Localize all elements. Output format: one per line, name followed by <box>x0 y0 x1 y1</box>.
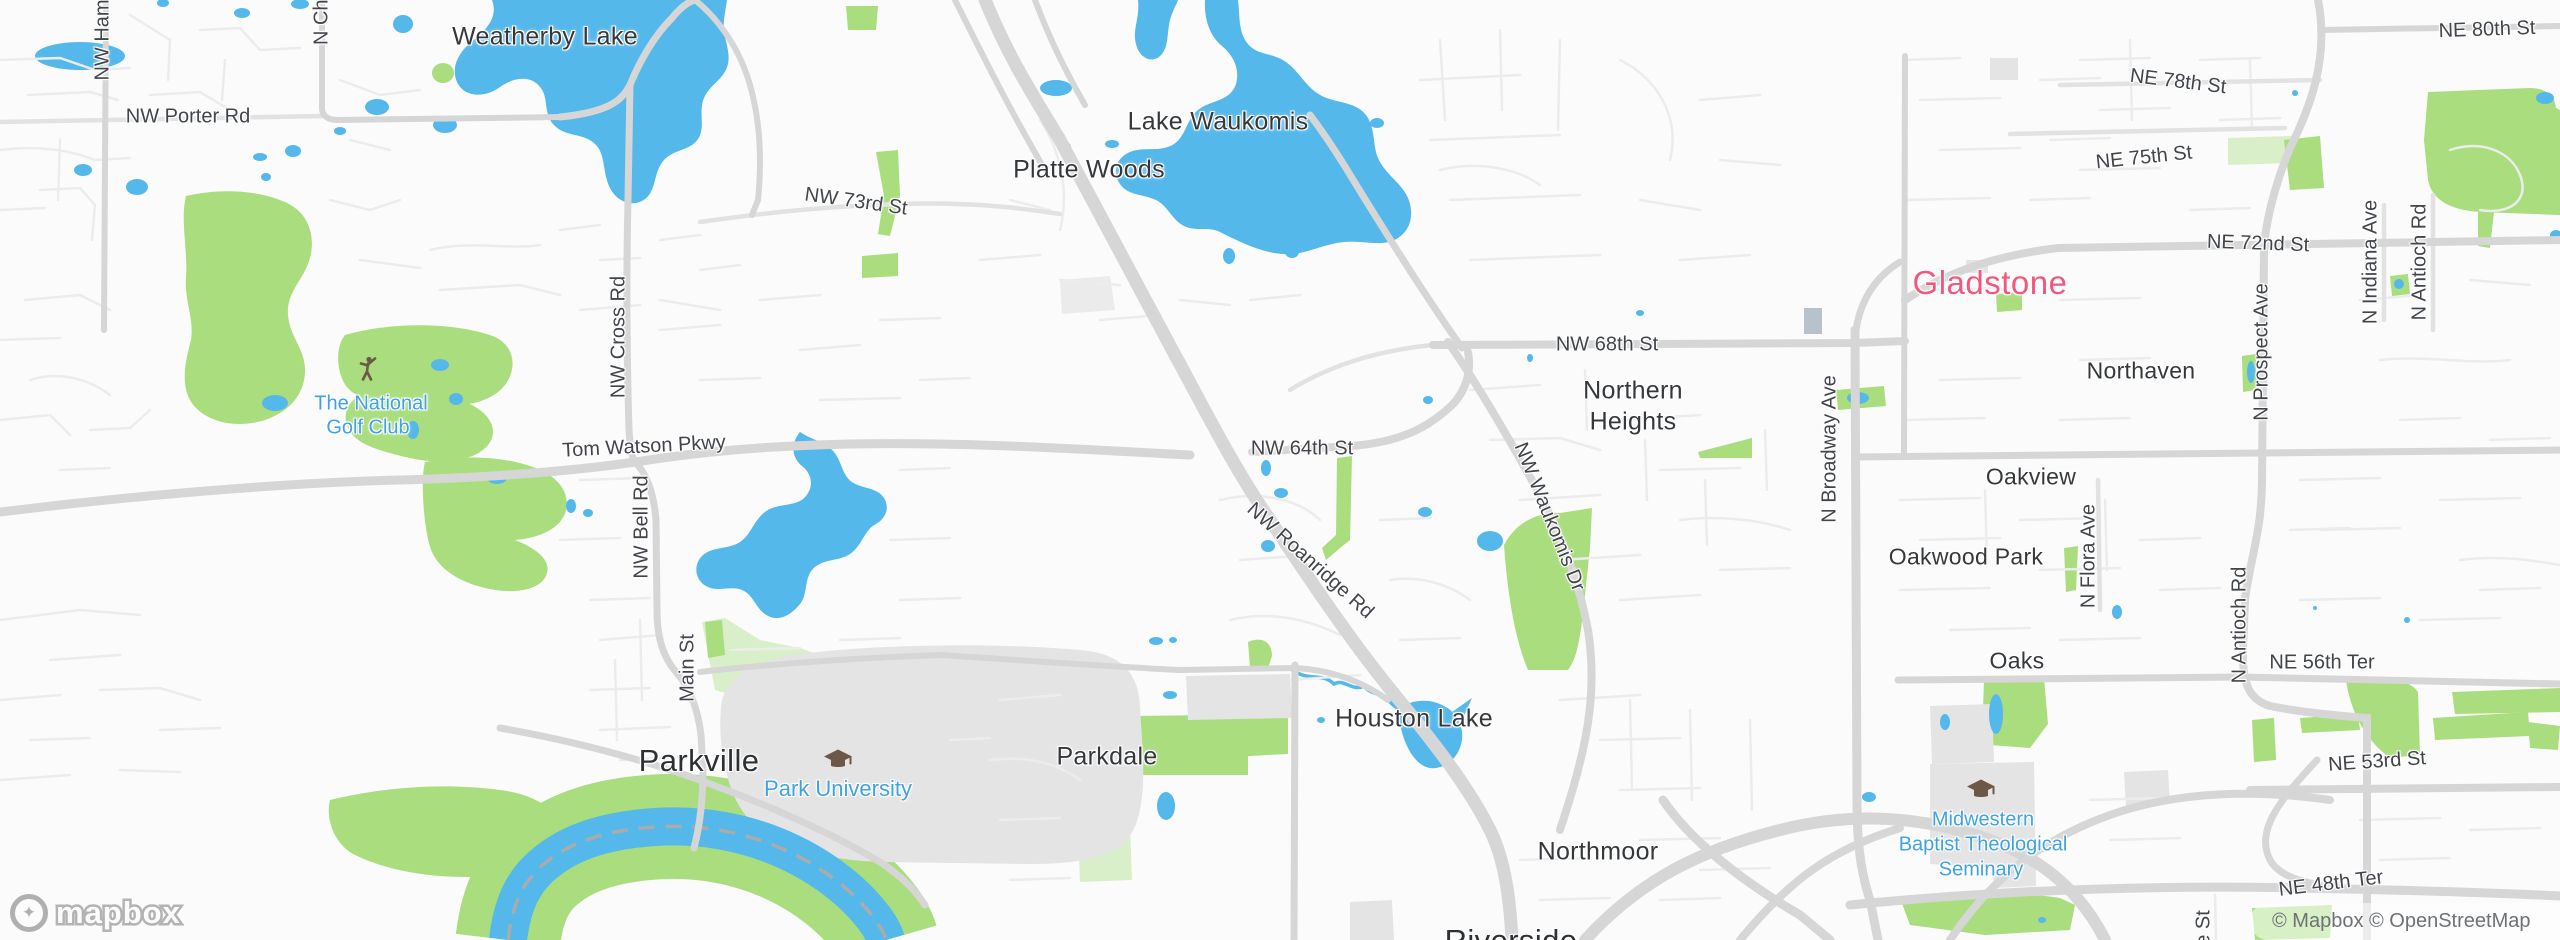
road-nw-64th-st: NW 64th St <box>1251 438 1353 461</box>
lake-waukomis-water <box>1135 0 1178 59</box>
riss-lake-water <box>696 432 886 618</box>
attribution-bar[interactable]: © Mapbox © OpenStreetMap <box>2250 903 2560 940</box>
road-n-prospect-ave: N Prospect Ave <box>2251 283 2274 420</box>
place-riverside: Riverside <box>1445 923 1578 940</box>
road-e-st-partial: e St <box>2193 910 2216 940</box>
road-n-indiana-ave: N Indiana Ave <box>2360 200 2383 324</box>
road-n-flora-ave: N Flora Ave <box>2078 504 2101 608</box>
place-parkdale: Parkdale <box>1056 743 1157 772</box>
place-oakview: Oakview <box>1986 464 2076 491</box>
place-oakwood-park: Oakwood Park <box>1889 544 2043 571</box>
poi-national-golf-club-line1: The National <box>314 393 427 416</box>
place-lake-waukomis: Lake Waukomis <box>1128 108 1309 137</box>
road-main-st: Main St <box>677 634 700 702</box>
mapbox-pin-icon: ✦ <box>10 894 48 932</box>
graduation-cap-icon <box>1966 779 1996 806</box>
road-ne-72nd-st: NE 72nd St <box>2206 231 2309 258</box>
map-canvas[interactable]: Weatherby Lake Lake Waukomis Platte Wood… <box>0 0 2560 940</box>
graduation-cap-icon <box>823 749 853 776</box>
road-nw-porter-rd: NW Porter Rd <box>126 106 250 129</box>
attribution-text: © Mapbox © OpenStreetMap <box>2272 910 2531 933</box>
road-nw-hampton: NW Ham <box>92 0 115 81</box>
map-tiles <box>0 0 2560 940</box>
poi-seminary-line2: Baptist Theological <box>1899 834 2068 857</box>
poi-seminary-line3: Seminary <box>1939 859 2023 882</box>
place-northern-heights-line1: Northern <box>1583 377 1683 406</box>
place-houston-lake: Houston Lake <box>1335 705 1493 734</box>
road-nw-cross-rd: NW Cross Rd <box>608 276 631 398</box>
road-n-broadway-ave: N Broadway Ave <box>1819 375 1842 523</box>
road-ne-56th-ter: NE 56th Ter <box>2269 652 2374 675</box>
road-n-antioch-rd-mid: N Antioch Rd <box>2229 567 2252 684</box>
road-nw-bell-rd: NW Bell Rd <box>631 475 654 578</box>
road-n-chi: N Chi <box>311 0 334 45</box>
poi-park-university: Park University <box>764 776 912 802</box>
road-ne-80th-st: NE 80th St <box>2438 17 2535 43</box>
place-parkville: Parkville <box>639 743 760 779</box>
place-northern-heights-line2: Heights <box>1590 408 1677 437</box>
poi-seminary-line1: Midwestern <box>1932 809 2034 832</box>
poi-national-golf-club-line2: Golf Club <box>326 417 409 440</box>
place-northaven: Northaven <box>2087 358 2196 385</box>
place-gladstone: Gladstone <box>1913 264 2068 302</box>
place-oaks: Oaks <box>1990 648 2045 675</box>
place-northmoor: Northmoor <box>1538 838 1659 867</box>
road-nw-68th-st: NW 68th St <box>1556 334 1658 357</box>
place-weatherby-lake: Weatherby Lake <box>452 23 638 52</box>
mapbox-logo[interactable]: ✦ mapbox <box>10 894 181 932</box>
place-platte-woods: Platte Woods <box>1013 156 1165 185</box>
road-n-antioch-rd-north: N Antioch Rd <box>2409 204 2432 321</box>
building-slate <box>1804 308 1822 334</box>
mapbox-wordmark: mapbox <box>56 895 181 931</box>
golfer-icon <box>355 356 381 387</box>
